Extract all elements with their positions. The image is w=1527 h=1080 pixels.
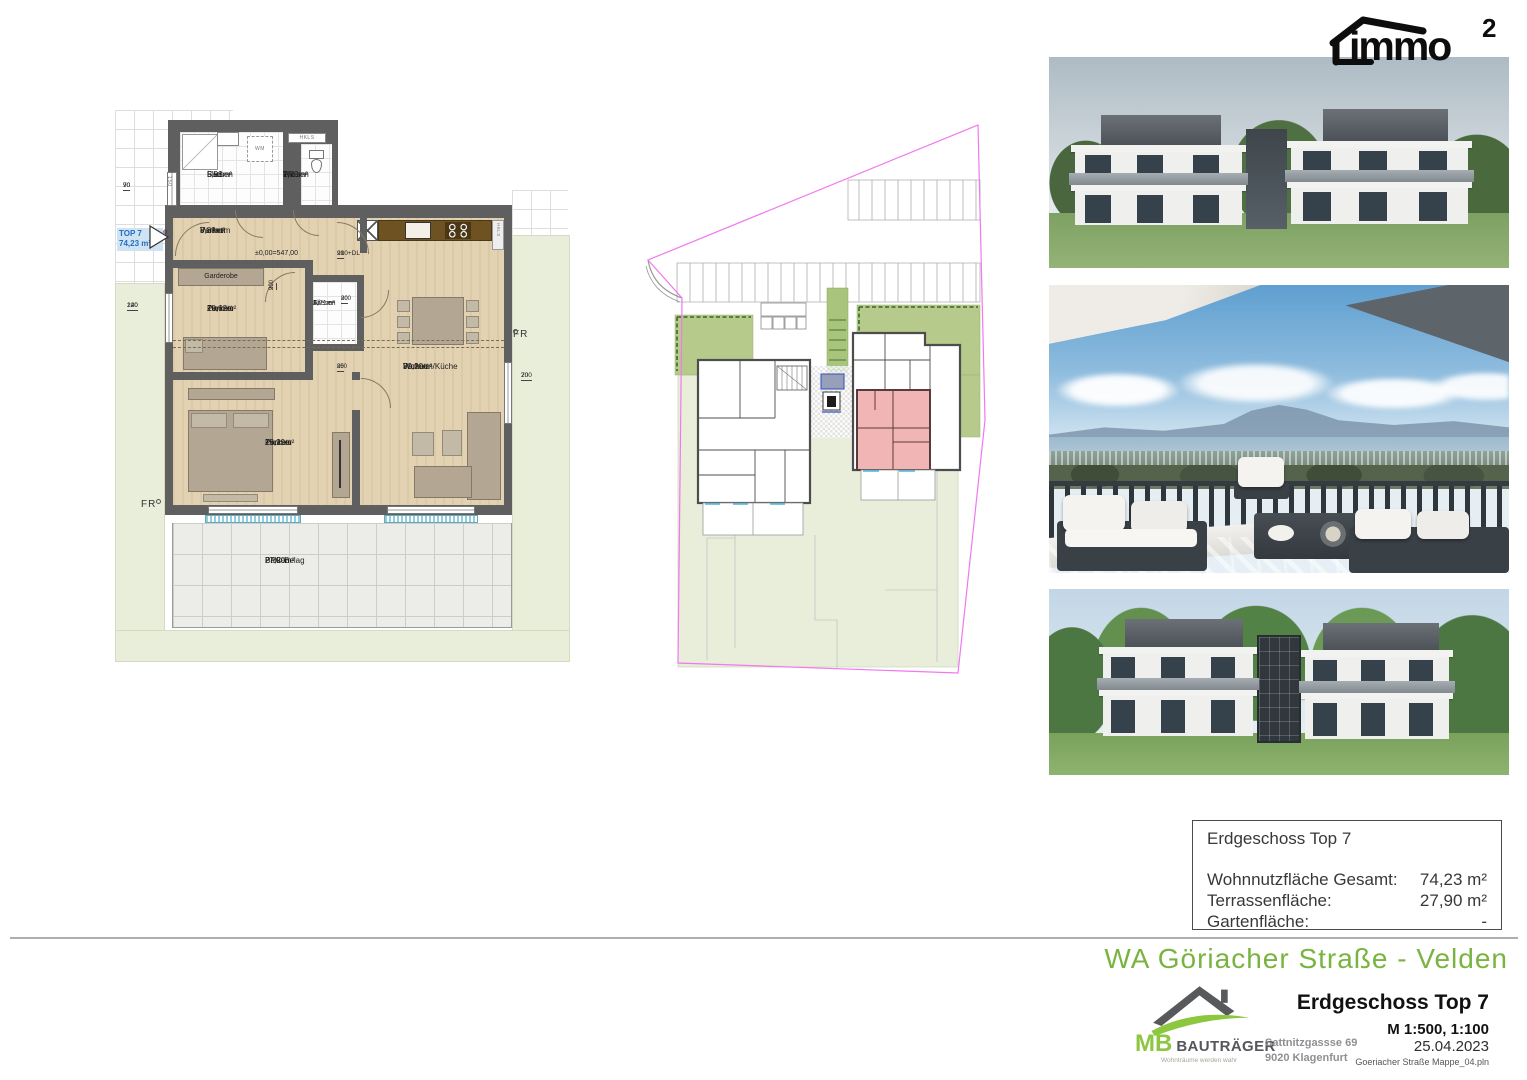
central-core bbox=[805, 366, 860, 438]
washing-machine-box: WM bbox=[247, 136, 273, 162]
building-right bbox=[1301, 623, 1453, 743]
penthouse bbox=[1323, 623, 1439, 650]
window bbox=[1361, 703, 1385, 736]
company-address: Sattnitzgassse 69 9020 Klagenfurt bbox=[1265, 1036, 1357, 1066]
window bbox=[1313, 703, 1337, 736]
date-label: 25.04.2023 bbox=[1414, 1038, 1489, 1055]
sofa-seat bbox=[414, 466, 472, 498]
info-value: 27,90 m² bbox=[1420, 890, 1487, 911]
rendering-exterior-1 bbox=[1049, 57, 1509, 268]
tv-sideboard bbox=[332, 432, 350, 498]
window bbox=[1303, 192, 1331, 221]
room-abstellraum bbox=[313, 282, 357, 344]
chair bbox=[466, 332, 479, 344]
rendering-terrace-view bbox=[1049, 285, 1509, 573]
wall-segment bbox=[173, 260, 305, 268]
door-opening bbox=[352, 380, 360, 410]
pillow bbox=[233, 413, 269, 428]
window bbox=[1085, 195, 1111, 223]
immo-logo: immo 2 bbox=[1325, 12, 1520, 67]
sofa-left bbox=[1057, 493, 1207, 573]
sliding-door bbox=[387, 506, 475, 514]
window-sill bbox=[384, 515, 478, 523]
info-value: - bbox=[1481, 911, 1487, 932]
parking-rows bbox=[677, 180, 980, 302]
window bbox=[1161, 700, 1185, 733]
shaft-label: HKLS bbox=[496, 223, 501, 237]
cooktop-icon bbox=[445, 222, 471, 239]
sofa-cushion bbox=[1063, 495, 1125, 531]
penthouse bbox=[1101, 115, 1221, 145]
upper-floor bbox=[1103, 654, 1253, 690]
window bbox=[1111, 700, 1135, 733]
fr-marker-left: FR bbox=[141, 499, 156, 510]
mb-bautraeger-logo-graphic bbox=[1137, 978, 1267, 1036]
shower-icon bbox=[182, 134, 218, 170]
bed-bench bbox=[203, 494, 258, 502]
armchair bbox=[442, 430, 462, 456]
rendering-exterior-2 bbox=[1049, 589, 1509, 775]
building-west bbox=[698, 360, 810, 535]
garden-area bbox=[115, 283, 165, 660]
window bbox=[165, 293, 173, 343]
chair bbox=[397, 332, 410, 344]
sideboard bbox=[188, 388, 275, 400]
building-right bbox=[1287, 109, 1472, 227]
upper-floor bbox=[1291, 148, 1468, 182]
sofa-cushion bbox=[1355, 509, 1411, 539]
balcony-railing bbox=[1097, 678, 1259, 690]
coffee-table bbox=[412, 432, 434, 456]
info-row: Wohnnutzfläche Gesamt: 74,23 m² bbox=[1207, 869, 1487, 890]
window bbox=[1419, 192, 1447, 221]
shaft-box: HKLS bbox=[492, 220, 504, 250]
road-curve bbox=[646, 260, 682, 302]
sofa-cushion bbox=[1417, 511, 1469, 539]
upper-floor bbox=[1075, 152, 1242, 185]
wardrobe-garderobe: Garderobe bbox=[178, 268, 264, 286]
window bbox=[504, 362, 512, 424]
info-label: Terrassenfläche: bbox=[1207, 890, 1332, 911]
company-initials: MB bbox=[1135, 1032, 1172, 1056]
info-label: Gartenfläche: bbox=[1207, 911, 1309, 932]
washbasin-icon bbox=[217, 132, 239, 146]
title-block-divider bbox=[10, 937, 1518, 939]
company-name: BAUTRÄGER bbox=[1176, 1038, 1275, 1055]
ground-floor bbox=[1075, 191, 1242, 225]
immo-logo-graphic: immo 2 bbox=[1325, 12, 1520, 67]
ground-floor bbox=[1103, 696, 1253, 736]
toilet-tank-icon bbox=[309, 150, 324, 159]
roof-slab bbox=[1287, 141, 1472, 148]
fire-bowl bbox=[1318, 519, 1348, 549]
roof-slab bbox=[1099, 647, 1257, 654]
mb-bautraeger-logo-text: MB BAUTRÄGER Wohnträume werden wahr bbox=[1135, 1032, 1265, 1064]
window bbox=[1211, 700, 1235, 733]
shaft-box: HKLS bbox=[288, 133, 326, 143]
balcony-railing bbox=[1299, 681, 1455, 693]
chair-cushion bbox=[1238, 457, 1284, 487]
info-value: 74,23 m² bbox=[1420, 869, 1487, 890]
building-left bbox=[1071, 115, 1246, 225]
window bbox=[1137, 195, 1163, 223]
kitchen-counter bbox=[378, 220, 492, 241]
garden-area bbox=[512, 235, 570, 660]
chair bbox=[397, 300, 410, 312]
room-label: Garderobe bbox=[179, 273, 263, 282]
address-line-1: Sattnitzgassse 69 bbox=[1265, 1036, 1357, 1051]
section-line bbox=[173, 340, 504, 341]
logo-superscript: 2 bbox=[1482, 13, 1496, 43]
info-row: Gartenfläche: - bbox=[1207, 911, 1487, 932]
building-left bbox=[1099, 619, 1257, 743]
plate bbox=[1268, 525, 1294, 541]
wall-segment bbox=[305, 260, 313, 372]
entrance-arrow-icon bbox=[148, 224, 170, 250]
shaft-label: HKLS bbox=[289, 135, 325, 141]
balcony-railing bbox=[1069, 173, 1248, 185]
dining-table bbox=[412, 297, 464, 345]
unit-info-box: Erdgeschoss Top 7 Wohnnutzfläche Gesamt:… bbox=[1192, 820, 1502, 930]
fr-marker-right: FR bbox=[513, 329, 528, 340]
chair bbox=[397, 316, 410, 328]
armchair-far bbox=[1234, 457, 1289, 499]
scale-label: M 1:500, 1:100 bbox=[1387, 1021, 1489, 1038]
garden-area bbox=[115, 630, 570, 662]
window bbox=[1409, 703, 1433, 736]
sheet-title: Erdgeschoss Top 7 bbox=[1297, 991, 1489, 1015]
ground-floor bbox=[1291, 188, 1468, 224]
roof-slab bbox=[1071, 145, 1246, 152]
building-connector bbox=[1246, 129, 1287, 229]
balcony-railing bbox=[1285, 170, 1474, 182]
penthouse bbox=[1323, 109, 1448, 141]
project-title: WA Göriacher Straße - Velden bbox=[1104, 943, 1508, 975]
floorplan-panel: HKLS WM HKLS Garderobe bbox=[115, 110, 570, 670]
window-sill bbox=[205, 515, 301, 523]
window bbox=[1193, 195, 1219, 223]
ground-floor bbox=[1305, 699, 1449, 739]
site-plan bbox=[645, 120, 990, 675]
penthouse bbox=[1125, 619, 1243, 647]
window bbox=[1359, 192, 1387, 221]
sofa-chaise bbox=[467, 412, 501, 500]
washing-machine-label: WM bbox=[248, 146, 272, 152]
balcony-area bbox=[172, 523, 512, 628]
sofa-seat-cushion bbox=[1065, 529, 1197, 547]
carport-sheds bbox=[761, 303, 806, 329]
chair bbox=[466, 316, 479, 328]
sliding-door bbox=[208, 506, 298, 514]
upper-floor bbox=[1305, 657, 1449, 693]
section-line bbox=[173, 347, 504, 348]
stair-tower bbox=[1257, 635, 1301, 743]
info-label: Wohnnutzfläche Gesamt: bbox=[1207, 869, 1398, 890]
company-tagline: Wohnträume werden wahr bbox=[1161, 1057, 1265, 1064]
drawing-grid bbox=[512, 190, 568, 235]
info-row: Terrassenfläche: 27,90 m² bbox=[1207, 890, 1487, 911]
pillow bbox=[191, 413, 227, 428]
wall-segment bbox=[173, 372, 313, 380]
dimension-label: 150 bbox=[166, 176, 172, 187]
info-box-title: Erdgeschoss Top 7 bbox=[1207, 829, 1487, 849]
sofa-right bbox=[1349, 509, 1509, 573]
file-name-label: Goeriacher Straße Mappe_04.pln bbox=[1355, 1057, 1489, 1067]
chair bbox=[466, 300, 479, 312]
pillow bbox=[185, 339, 203, 353]
address-line-2: 9020 Klagenfurt bbox=[1265, 1051, 1357, 1066]
logo-word: immo bbox=[1349, 23, 1451, 67]
roof-slab bbox=[1301, 650, 1453, 657]
sink-icon bbox=[405, 222, 431, 239]
tv-icon bbox=[339, 440, 341, 488]
chimney-icon bbox=[1221, 990, 1228, 1003]
